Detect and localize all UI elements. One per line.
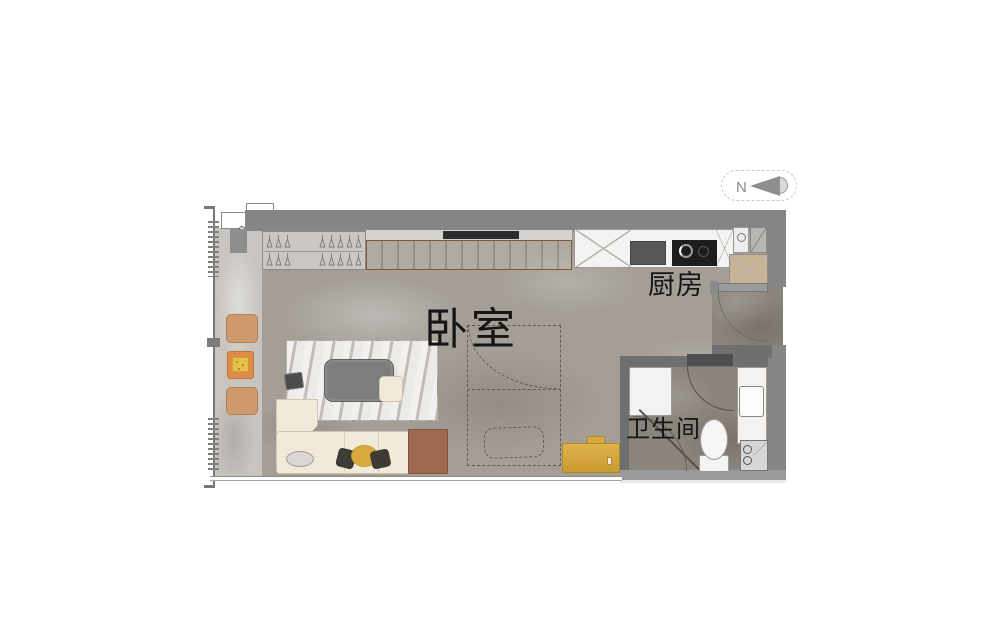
hanger-icon xyxy=(328,235,335,248)
washer-drum-icon xyxy=(743,445,752,454)
wardrobe xyxy=(262,231,366,270)
hanger-icon xyxy=(284,253,291,266)
hanger-icon xyxy=(346,253,353,266)
gold-desk-handle xyxy=(607,457,612,465)
bedroom-label: 卧室 xyxy=(424,308,518,352)
wall-column xyxy=(230,229,247,253)
right-wall-lower xyxy=(768,345,786,483)
pouf xyxy=(226,387,258,415)
burner-icon xyxy=(679,244,693,258)
tray-icon xyxy=(232,357,249,372)
tray-icon xyxy=(284,372,304,390)
tv-icon xyxy=(443,231,519,239)
bathroom-label: 卫生间 xyxy=(626,418,701,442)
hanger-icon xyxy=(328,253,335,266)
north-compass: N xyxy=(721,170,797,201)
window-mullion xyxy=(208,418,219,473)
shower-tray xyxy=(629,367,672,416)
pouf xyxy=(226,314,258,343)
kitchen-sink xyxy=(750,227,767,253)
washer-lid-line xyxy=(754,442,767,455)
hanger-icon xyxy=(337,235,344,248)
counter-section xyxy=(576,230,631,267)
hanger-icon xyxy=(346,235,353,248)
compass-north-label: N xyxy=(736,179,747,196)
side-cabinet xyxy=(408,429,448,474)
compass-needle-icon xyxy=(750,176,780,196)
wood-panel xyxy=(366,240,572,270)
bottom-window-line xyxy=(210,476,622,481)
hanger-icon xyxy=(355,253,362,266)
wardrobe-hanger-row xyxy=(266,253,362,268)
hob-icon xyxy=(630,241,666,265)
pillow-icon xyxy=(286,451,314,467)
right-wall-upper xyxy=(766,210,786,287)
washer-drum-icon xyxy=(743,456,752,465)
hanger-icon xyxy=(319,235,326,248)
top-wall xyxy=(245,210,786,231)
hanger-icon xyxy=(275,253,282,266)
hanger-icon xyxy=(355,235,362,248)
hanger-icon xyxy=(275,235,282,248)
hanger-icon xyxy=(337,253,344,266)
floor-plan: N xyxy=(0,0,1000,621)
armchair xyxy=(379,376,403,402)
faucet-box xyxy=(733,227,749,253)
faucet-icon xyxy=(737,233,746,242)
wall-tick xyxy=(204,206,215,209)
hanger-icon xyxy=(266,235,273,248)
murphy-bed-pillow-outline xyxy=(483,426,544,459)
window-mullion xyxy=(208,221,219,277)
kitchen-label: 厨房 xyxy=(648,272,704,299)
wardrobe-shelf-line xyxy=(265,251,363,252)
toilet-bowl xyxy=(700,419,728,460)
bathroom-door-leaf xyxy=(687,354,733,366)
burner-icon xyxy=(698,246,709,257)
door-jamb xyxy=(710,281,718,294)
washing-machine xyxy=(740,440,768,471)
murphy-bed-fold-line xyxy=(467,389,561,390)
hanger-icon xyxy=(284,235,291,248)
wardrobe-hanger-row xyxy=(266,235,362,250)
cooktop-icon xyxy=(672,240,717,266)
vanity-basin xyxy=(739,386,764,417)
wall-tick xyxy=(204,485,215,488)
window-clamp xyxy=(207,338,220,347)
hanger-icon xyxy=(319,253,326,266)
hanger-icon xyxy=(266,253,273,266)
entry-door-leaf xyxy=(718,283,768,292)
